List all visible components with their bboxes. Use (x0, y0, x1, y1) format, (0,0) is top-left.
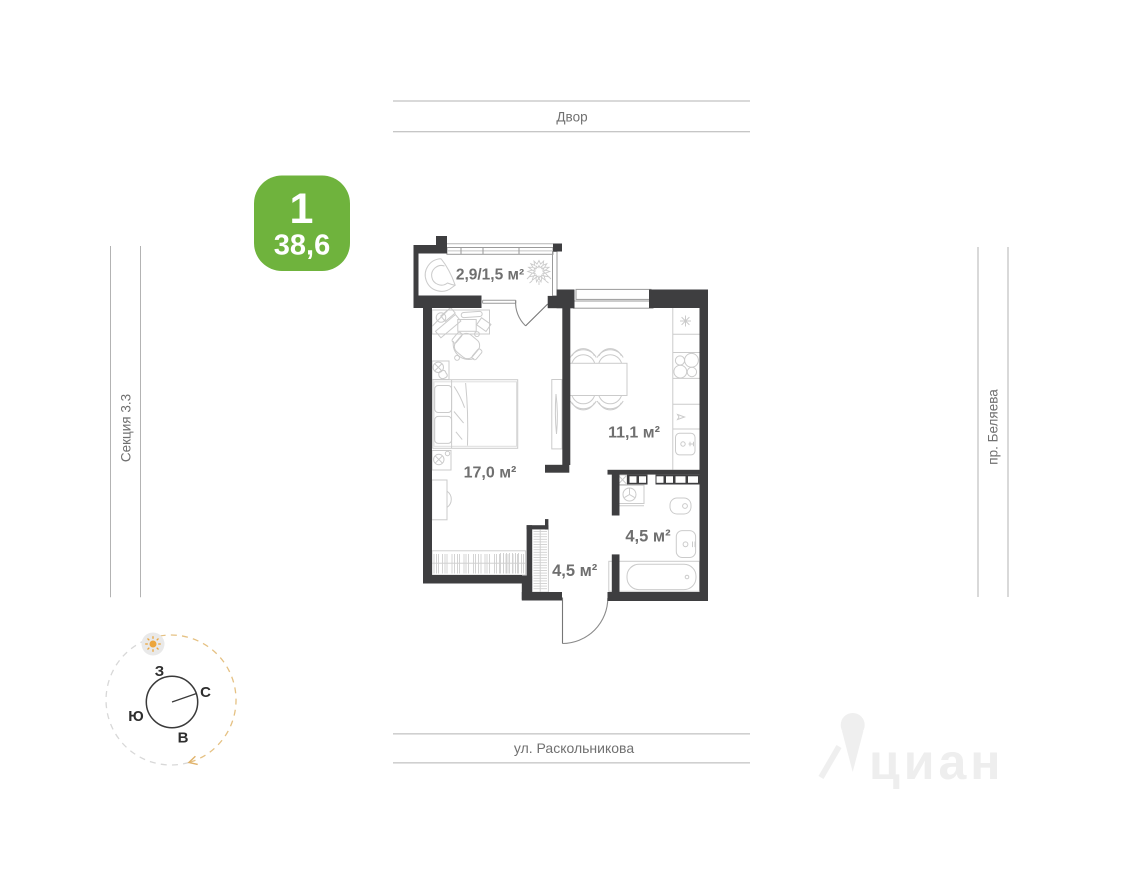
svg-text:2,9/1,5 м²: 2,9/1,5 м² (456, 267, 524, 284)
svg-text:17,0 м²: 17,0 м² (464, 465, 517, 482)
svg-text:1: 1 (290, 185, 314, 233)
svg-text:З: З (155, 663, 164, 680)
svg-text:4,5 м²: 4,5 м² (625, 528, 671, 546)
svg-text:В: В (178, 729, 189, 746)
svg-text:Секция 3.3: Секция 3.3 (119, 394, 134, 462)
svg-text:Двор: Двор (556, 110, 587, 125)
svg-text:Ю: Ю (128, 708, 143, 725)
svg-text:С: С (200, 684, 211, 701)
svg-text:38,6: 38,6 (274, 230, 330, 262)
svg-text:пр. Беляева: пр. Беляева (986, 389, 1001, 465)
svg-text:4,5 м²: 4,5 м² (552, 562, 598, 580)
svg-text:циан: циан (869, 734, 1004, 790)
svg-text:ул. Раскольникова: ул. Раскольникова (514, 740, 634, 756)
svg-text:11,1 м²: 11,1 м² (608, 425, 660, 442)
